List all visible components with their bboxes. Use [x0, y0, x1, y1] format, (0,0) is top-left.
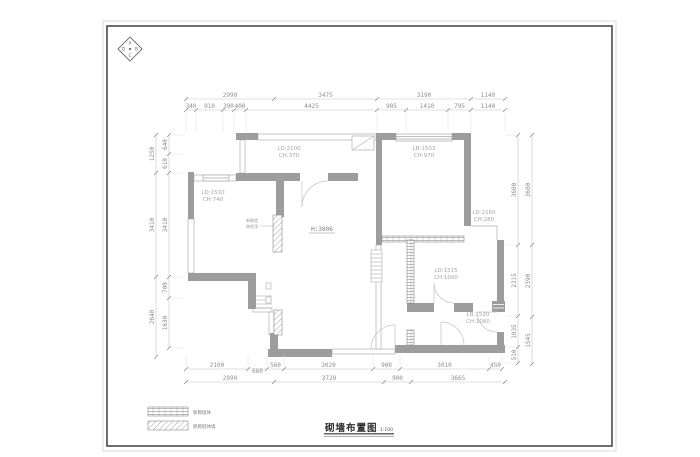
- drawing-scale: 1:100: [380, 427, 393, 433]
- room-label: LD:2100: [277, 146, 301, 152]
- dim-label: 3020: [321, 362, 336, 369]
- dim-label: 610: [162, 158, 169, 169]
- thin-wall: [188, 219, 194, 273]
- new-wall-brick: [382, 236, 464, 242]
- room-label: LB:1520: [467, 312, 490, 318]
- dim-label: 450: [490, 362, 501, 369]
- room-label: LD:1515: [434, 268, 458, 274]
- compass-letter: B: [135, 47, 138, 52]
- new-wall-hatch: [274, 310, 282, 335]
- dim-label: 3410: [149, 217, 156, 232]
- room-label: CH:1000: [434, 275, 458, 281]
- floor-plan-canvas: ABCD: [0, 0, 700, 457]
- dim-label: 1035: [511, 324, 518, 339]
- dim-label: 3010: [437, 362, 452, 369]
- dim-label: 3665: [451, 375, 466, 382]
- legend-swatch-hatch: [148, 421, 188, 430]
- leader-note: 新砌墙: [246, 217, 258, 223]
- wall-segment: [464, 140, 471, 226]
- wall-segment: [454, 303, 473, 312]
- dim-label: 640: [162, 139, 169, 150]
- dim-label: 2390: [525, 273, 532, 288]
- wall-segment: [328, 173, 358, 181]
- dim-label: 1140: [481, 92, 496, 99]
- room-label: CH:280: [474, 217, 495, 223]
- thin-wall: [269, 312, 274, 335]
- wall-segment: [407, 303, 434, 312]
- dim-label: 3475: [318, 92, 333, 99]
- new-wall-brick: [407, 240, 414, 303]
- legend-label-2: 新砌轻体墙: [193, 423, 216, 430]
- room-label: CH:1060: [466, 319, 490, 325]
- dim-label: 1250: [149, 146, 156, 161]
- wall-segment: [497, 332, 504, 345]
- wall-segment: [276, 181, 284, 217]
- compass-center-dot: [129, 48, 131, 50]
- dim-label: 3410: [162, 217, 169, 232]
- legend-label-1: 新砌墙体: [193, 409, 211, 416]
- dim-label: 2100: [210, 362, 225, 369]
- wall-segment: [452, 133, 471, 140]
- thin-wall: [332, 349, 395, 354]
- wall-segment: [270, 333, 278, 353]
- dim-label: 2640: [149, 309, 156, 324]
- dim-label: 400: [235, 103, 246, 110]
- drawing-title: 砌墙布置图: [324, 422, 378, 434]
- room-label: LD:2160: [472, 210, 496, 216]
- room-label: LB:1503: [413, 146, 436, 152]
- wall-segment: [236, 173, 300, 181]
- dim-label: 985: [386, 103, 397, 110]
- wall-segment: [188, 273, 256, 281]
- wall-segment: [376, 134, 382, 245]
- dim-label: 2990: [223, 375, 238, 382]
- window-block: [492, 301, 505, 312]
- wall-segment: [236, 133, 258, 140]
- dim-label: 900: [381, 362, 392, 369]
- dim-label: 795: [454, 103, 465, 110]
- room-label: LD:1510: [201, 190, 225, 196]
- dim-label: 2990: [223, 92, 238, 99]
- legend-swatch-brick: [148, 407, 188, 416]
- wall-segment: [376, 133, 396, 140]
- dim-label: 700: [162, 282, 169, 293]
- dim-label: 390: [223, 103, 234, 110]
- thin-wall: [240, 140, 245, 173]
- sheet-border: [107, 26, 612, 446]
- dim-label: 1630: [162, 315, 169, 330]
- window-symbol: [396, 134, 452, 141]
- dim-label: 2315: [511, 273, 518, 288]
- compass-letter: D: [122, 47, 125, 52]
- dim-label: 340: [186, 103, 197, 110]
- dim-label: 910: [204, 103, 215, 110]
- new-wall-brick: [407, 330, 414, 345]
- compass-letter: C: [129, 53, 132, 58]
- drawing-sheet: ABCD: [0, 0, 700, 457]
- dim-label: 3600: [525, 182, 532, 197]
- dim-label: 3190: [417, 92, 432, 99]
- wall-segment: [248, 281, 256, 309]
- room-label: CH:970: [414, 153, 435, 159]
- compass-letter: A: [129, 41, 132, 46]
- room-label: CH:370: [279, 153, 300, 159]
- dim-label: 1140: [481, 103, 496, 110]
- dim-label: 4425: [304, 103, 319, 110]
- dim-label: 3600: [511, 182, 518, 197]
- height-label: H:3806: [311, 226, 333, 233]
- wall-segment: [188, 172, 194, 219]
- room-label: CH:740: [203, 197, 224, 203]
- dim-label: 660: [252, 368, 263, 375]
- dim-label: 1545: [525, 333, 532, 348]
- dim-label: 900: [392, 375, 403, 382]
- dim-label: 3720: [322, 375, 337, 382]
- wall-segment: [395, 345, 505, 353]
- door-jamb: [266, 297, 271, 303]
- dim-label: 510: [511, 349, 518, 360]
- dim-label: 1410: [420, 103, 435, 110]
- leader-note: 做到顶: [246, 223, 258, 229]
- door-jamb: [266, 283, 271, 289]
- dim-label: 560: [270, 362, 281, 369]
- new-wall-hatch: [273, 215, 282, 252]
